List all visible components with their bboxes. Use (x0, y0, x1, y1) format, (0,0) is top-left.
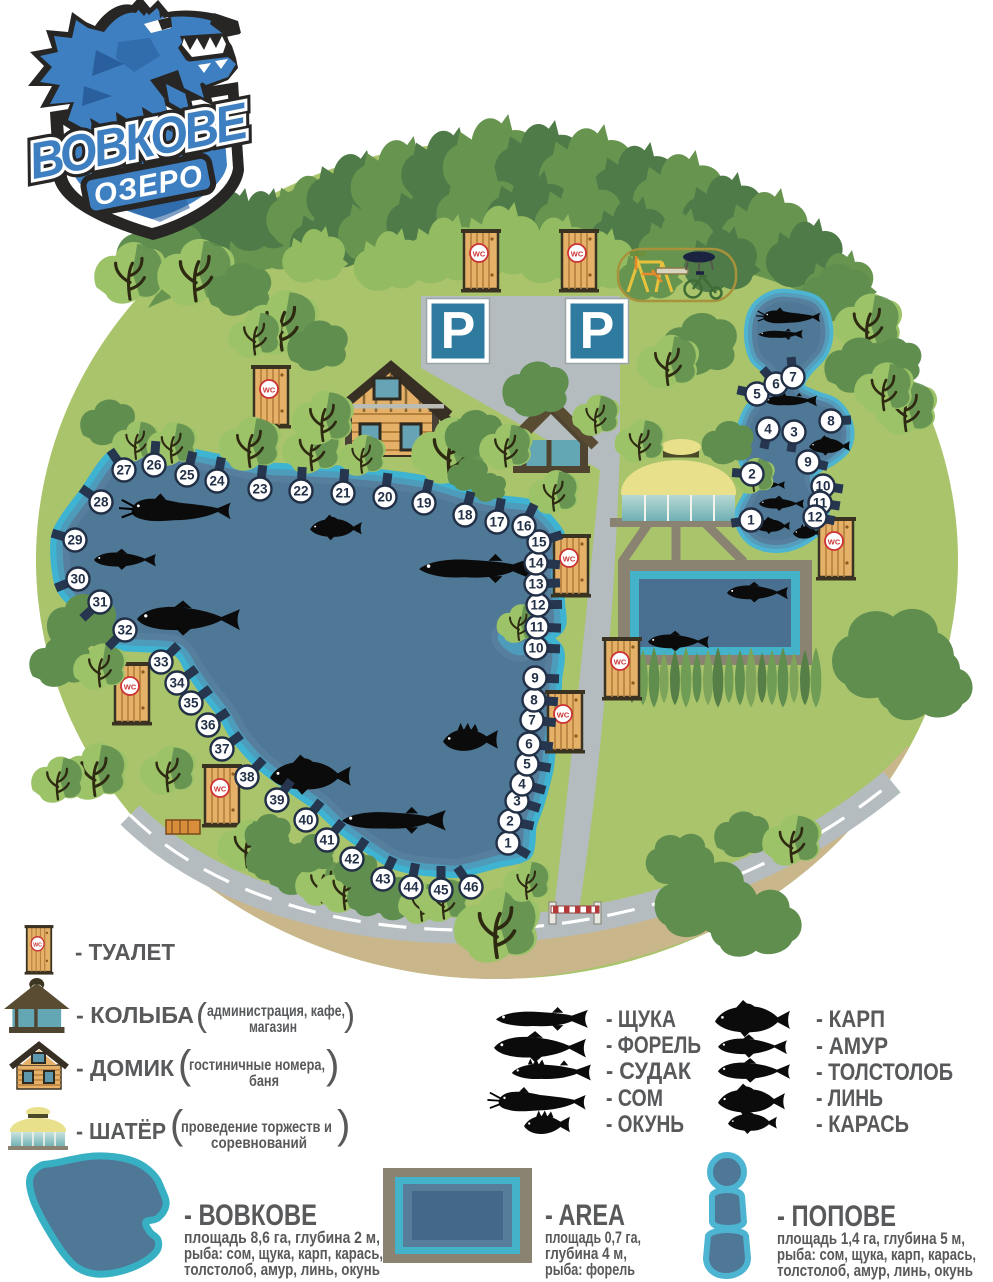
svg-text:10: 10 (528, 641, 543, 656)
svg-text:проведение торжеств и: проведение торжеств и (181, 1119, 332, 1136)
svg-text:14: 14 (528, 556, 544, 571)
svg-text:42: 42 (344, 852, 359, 867)
svg-text:): ) (344, 996, 355, 1033)
svg-text:21: 21 (335, 486, 351, 501)
svg-text:7: 7 (789, 370, 797, 385)
svg-text:1: 1 (747, 513, 755, 528)
svg-text:40: 40 (298, 813, 313, 828)
svg-text:26: 26 (146, 458, 162, 473)
svg-text:20: 20 (377, 490, 392, 505)
svg-text:(: ( (196, 996, 207, 1033)
svg-text:4: 4 (518, 777, 526, 792)
svg-text:P: P (441, 302, 476, 360)
svg-text:37: 37 (214, 742, 229, 757)
svg-text:11: 11 (530, 620, 545, 635)
svg-text:1: 1 (504, 836, 512, 851)
svg-text:6: 6 (525, 737, 533, 752)
svg-text:): ) (326, 1043, 339, 1087)
svg-text:27: 27 (116, 463, 131, 478)
svg-text:- ЛИНЬ: - ЛИНЬ (816, 1085, 883, 1112)
svg-text:28: 28 (93, 495, 109, 510)
svg-text:43: 43 (375, 872, 391, 887)
svg-text:соревнований: соревнований (211, 1135, 307, 1152)
svg-text:P: P (580, 302, 615, 360)
svg-text:5: 5 (753, 387, 761, 402)
svg-text:рыба: форель: рыба: форель (545, 1260, 635, 1279)
svg-text:- ФОРЕЛЬ: - ФОРЕЛЬ (606, 1032, 701, 1059)
svg-text:9: 9 (531, 671, 539, 686)
svg-text:- АМУР: - АМУР (816, 1033, 888, 1060)
svg-text:гостиничные номера,: гостиничные номера, (189, 1057, 325, 1074)
svg-text:41: 41 (319, 833, 335, 848)
svg-text:46: 46 (463, 880, 479, 895)
svg-text:16: 16 (516, 519, 532, 534)
svg-text:6: 6 (772, 377, 780, 392)
svg-text:12: 12 (807, 510, 822, 525)
svg-text:31: 31 (92, 595, 108, 610)
svg-text:44: 44 (403, 880, 419, 895)
svg-text:23: 23 (252, 482, 268, 497)
svg-text:9: 9 (804, 455, 812, 470)
svg-text:2: 2 (748, 467, 756, 482)
svg-text:- ШАТЁР: - ШАТЁР (76, 1118, 166, 1144)
svg-text:19: 19 (416, 496, 431, 511)
svg-text:8: 8 (530, 693, 538, 708)
svg-text:- КАРП: - КАРП (816, 1006, 885, 1033)
svg-text:4: 4 (764, 422, 772, 437)
svg-text:- ДОМИК: - ДОМИК (76, 1055, 175, 1081)
svg-text:администрация, кафе,: администрация, кафе, (207, 1003, 345, 1020)
svg-text:- СОМ: - СОМ (606, 1085, 663, 1112)
svg-text:2: 2 (506, 814, 514, 829)
svg-text:12: 12 (530, 598, 545, 613)
svg-text:баня: баня (249, 1073, 279, 1090)
svg-text:- ТОЛСТОЛОБ: - ТОЛСТОЛОБ (816, 1059, 953, 1086)
svg-text:29: 29 (67, 533, 82, 548)
svg-text:24: 24 (209, 474, 225, 489)
svg-text:- КАРАСЬ: - КАРАСЬ (816, 1111, 909, 1138)
svg-text:8: 8 (827, 414, 835, 429)
svg-text:магазин: магазин (249, 1019, 297, 1036)
svg-text:17: 17 (489, 515, 504, 530)
svg-text:): ) (337, 1103, 350, 1147)
svg-text:- ТУАЛЕТ: - ТУАЛЕТ (75, 939, 175, 965)
svg-text:33: 33 (153, 655, 169, 670)
svg-text:15: 15 (531, 535, 547, 550)
svg-text:32: 32 (117, 623, 132, 638)
svg-text:толстолоб, амур, линь, окунь: толстолоб, амур, линь, окунь (184, 1260, 380, 1279)
svg-text:38: 38 (239, 770, 255, 785)
svg-text:- КОЛЫБА: - КОЛЫБА (76, 1002, 194, 1028)
svg-text:39: 39 (269, 793, 284, 808)
svg-text:толстолоб, амур, линь, окунь: толстолоб, амур, линь, окунь (777, 1261, 973, 1280)
svg-text:18: 18 (457, 508, 473, 523)
svg-text:22: 22 (293, 484, 308, 499)
svg-text:3: 3 (790, 425, 798, 440)
svg-text:- ЩУКА: - ЩУКА (606, 1006, 676, 1033)
svg-text:5: 5 (523, 757, 531, 772)
svg-text:45: 45 (433, 883, 449, 898)
svg-text:36: 36 (200, 718, 216, 733)
svg-text:- СУДАК: - СУДАК (606, 1058, 691, 1085)
svg-text:- ОКУНЬ: - ОКУНЬ (606, 1111, 684, 1138)
svg-text:30: 30 (70, 572, 85, 587)
svg-text:25: 25 (179, 468, 195, 483)
svg-text:7: 7 (528, 713, 536, 728)
svg-text:34: 34 (169, 676, 185, 691)
svg-text:35: 35 (183, 696, 199, 711)
svg-text:13: 13 (528, 577, 544, 592)
